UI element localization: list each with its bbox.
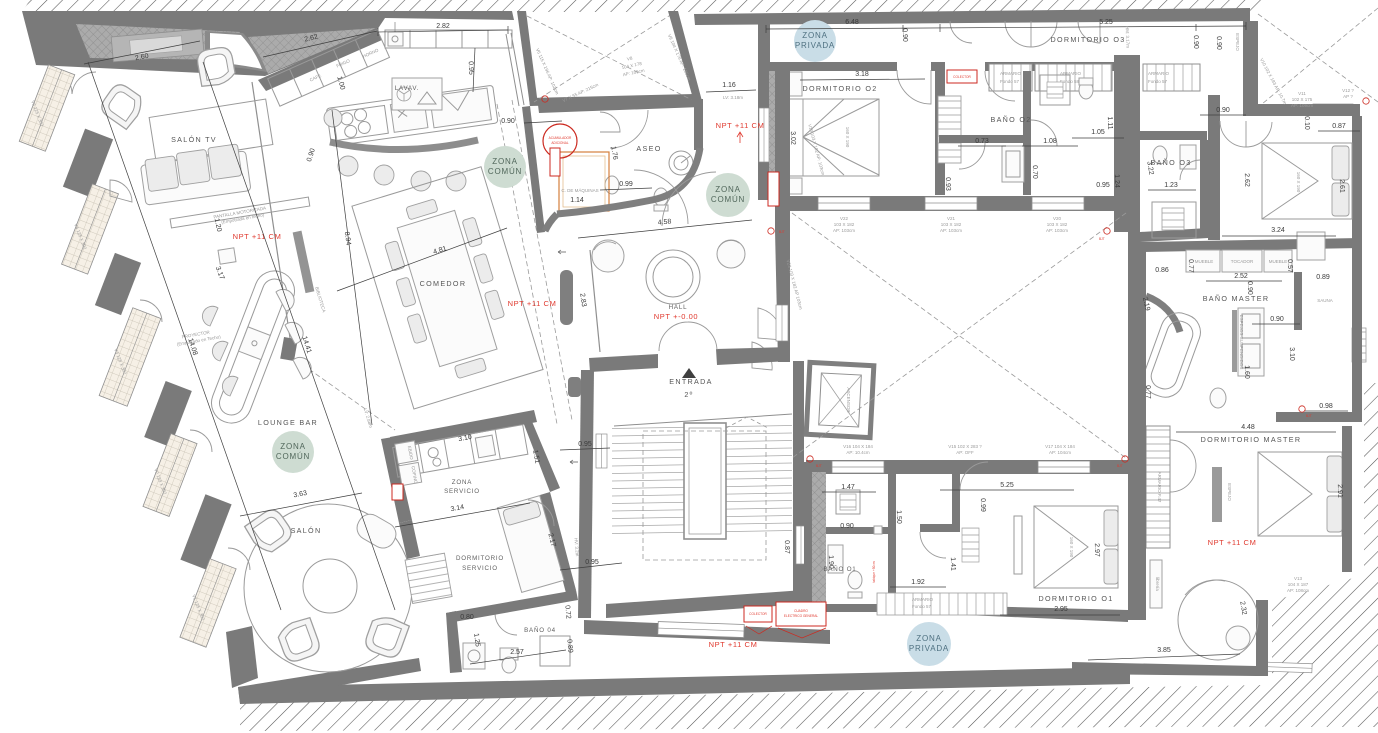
svg-text:NPT +11 CM: NPT +11 CM: [1208, 538, 1257, 547]
svg-text:MUEBLE: MUEBLE: [1195, 259, 1214, 264]
svg-text:SERVICIO: SERVICIO: [462, 565, 498, 572]
svg-text:0.77: 0.77: [1144, 385, 1151, 399]
svg-text:0.90: 0.90: [1215, 36, 1222, 50]
svg-text:3.18: 3.18: [855, 71, 869, 78]
svg-text:AP: 10.4cm: AP: 10.4cm: [846, 450, 870, 455]
svg-text:BAÑO O3: BAÑO O3: [1150, 158, 1191, 167]
svg-text:1.23: 1.23: [1164, 182, 1178, 189]
svg-text:HM: 3.17m: HM: 3.17m: [1125, 26, 1131, 48]
svg-text:ZONA: ZONA: [802, 31, 827, 40]
svg-text:ARMARIO: ARMARIO: [1000, 71, 1022, 76]
svg-text:1.14: 1.14: [570, 197, 584, 204]
svg-text:0.87: 0.87: [1332, 123, 1346, 130]
svg-text:ADICIONAL: ADICIONAL: [551, 141, 568, 145]
svg-text:COMEDOR: COMEDOR: [420, 279, 467, 288]
svg-text:tabique +50cm: tabique +50cm: [872, 561, 876, 582]
svg-text:1.08: 1.08: [1043, 138, 1057, 145]
svg-text:V20: V20: [1053, 216, 1062, 221]
svg-text:ACUMULADOR: ACUMULADOR: [549, 136, 572, 140]
svg-text:AP: 103cm: AP: 103cm: [833, 228, 855, 233]
svg-text:0.10: 0.10: [1303, 116, 1310, 130]
svg-text:SAUNA: SAUNA: [1317, 298, 1333, 303]
svg-text:PRIVADA: PRIVADA: [909, 644, 949, 653]
svg-text:1.24: 1.24: [1113, 174, 1120, 188]
svg-text:DORMITORIO: DORMITORIO: [456, 555, 504, 562]
svg-text:0.70: 0.70: [1031, 165, 1038, 179]
svg-text:2.57: 2.57: [510, 649, 524, 656]
svg-text:Fondo 57: Fondo 57: [912, 604, 932, 609]
svg-text:104 X 187: 104 X 187: [1288, 582, 1309, 587]
svg-text:5.25: 5.25: [1099, 19, 1113, 26]
svg-text:COLECTOR: COLECTOR: [953, 75, 971, 79]
svg-text:V16 104 X 184: V16 104 X 184: [843, 444, 873, 449]
svg-text:ZONA: ZONA: [452, 479, 472, 486]
svg-text:BAÑO 04: BAÑO 04: [524, 627, 556, 634]
svg-text:ASCENSOR: ASCENSOR: [846, 387, 851, 413]
svg-text:1.05: 1.05: [1091, 129, 1105, 136]
svg-text:3.02: 3.02: [789, 131, 796, 145]
svg-text:0.90: 0.90: [901, 28, 908, 42]
svg-text:DORMITORIO O2: DORMITORIO O2: [802, 84, 877, 93]
svg-text:0.90: 0.90: [1216, 107, 1230, 114]
svg-text:COMÚN: COMÚN: [711, 195, 745, 204]
svg-text:V17 104 X 184: V17 104 X 184: [1045, 444, 1075, 449]
svg-text:4.48: 4.48: [1241, 424, 1255, 431]
svg-text:NPT +11 CM: NPT +11 CM: [716, 121, 765, 130]
svg-text:102 X 175: 102 X 175: [1292, 97, 1313, 102]
svg-text:SALÓN: SALÓN: [291, 526, 322, 535]
svg-text:V12 ?: V12 ?: [1342, 88, 1354, 93]
svg-text:1.90: 1.90: [827, 555, 834, 569]
svg-text:AP: 108cm: AP: 108cm: [1287, 588, 1309, 593]
svg-text:ESPEJO: ESPEJO: [1235, 33, 1240, 51]
svg-text:BAÑO O2: BAÑO O2: [990, 115, 1031, 124]
svg-text:0.57: 0.57: [1286, 259, 1293, 273]
svg-text:0.93: 0.93: [944, 177, 951, 191]
svg-text:LV: 3.18m: LV: 3.18m: [723, 95, 743, 100]
svg-text:BJT: BJT: [1306, 414, 1312, 418]
svg-text:2.91: 2.91: [1336, 484, 1343, 498]
svg-text:AP ?: AP ?: [1343, 94, 1353, 99]
svg-text:2.52: 2.52: [1234, 273, 1248, 280]
svg-text:COMÚN: COMÚN: [276, 452, 310, 461]
svg-text:HALL: HALL: [669, 304, 688, 311]
svg-text:0.95: 0.95: [467, 61, 474, 75]
svg-text:0.98: 0.98: [1319, 403, 1333, 410]
svg-text:ENTRADA: ENTRADA: [669, 377, 712, 386]
svg-text:V22: V22: [840, 216, 849, 221]
svg-text:ZONA: ZONA: [492, 157, 517, 166]
svg-text:V21: V21: [947, 216, 956, 221]
svg-text:5.25: 5.25: [1000, 482, 1014, 489]
svg-text:SERVICIO: SERVICIO: [444, 488, 480, 495]
svg-text:AP: 103cm: AP: 103cm: [940, 228, 962, 233]
svg-text:AP: OFF: AP: OFF: [956, 450, 974, 455]
svg-text:ZONA: ZONA: [916, 634, 941, 643]
svg-text:1.11: 1.11: [1106, 116, 1113, 129]
svg-text:2.97: 2.97: [1093, 543, 1100, 557]
svg-text:CUADRO: CUADRO: [794, 609, 808, 613]
svg-text:BJT: BJT: [1117, 464, 1123, 468]
svg-text:ELECTRICO GENERAL: ELECTRICO GENERAL: [784, 614, 819, 618]
svg-text:AP: 103cm: AP: 103cm: [1046, 228, 1068, 233]
svg-text:0.72: 0.72: [563, 605, 571, 619]
svg-text:1.92: 1.92: [911, 579, 925, 586]
svg-text:3.24: 3.24: [1271, 227, 1285, 234]
svg-text:PRIVADA: PRIVADA: [795, 41, 835, 50]
svg-text:1.47: 1.47: [841, 484, 855, 491]
svg-text:3.85: 3.85: [1157, 647, 1171, 654]
svg-text:BJT: BJT: [816, 464, 822, 468]
svg-text:0.95: 0.95: [578, 441, 592, 448]
svg-text:2.61: 2.61: [1338, 179, 1345, 193]
svg-text:Fondo 57: Fondo 57: [1148, 79, 1168, 84]
svg-text:DORMITORIO O3: DORMITORIO O3: [1050, 35, 1125, 44]
svg-text:ARMARIO: ARMARIO: [912, 597, 934, 602]
svg-text:103 X 182: 103 X 182: [834, 222, 855, 227]
svg-text:0.86: 0.86: [1155, 267, 1169, 274]
svg-text:0.99: 0.99: [979, 498, 986, 512]
svg-text:103 X 182: 103 X 182: [941, 222, 962, 227]
svg-text:1.50: 1.50: [895, 510, 902, 524]
svg-text:0.89: 0.89: [1316, 274, 1330, 281]
svg-text:ARMARIO: ARMARIO: [1148, 71, 1170, 76]
svg-text:0.99: 0.99: [619, 181, 633, 188]
svg-text:DORMITORIO MASTER: DORMITORIO MASTER: [1201, 435, 1302, 444]
svg-text:COMÚN: COMÚN: [488, 167, 522, 176]
svg-text:6.48: 6.48: [845, 19, 859, 26]
svg-text:0.90: 0.90: [840, 523, 854, 530]
svg-text:0.73: 0.73: [975, 138, 989, 145]
svg-text:C. DE MÁQUINAS: C. DE MÁQUINAS: [561, 187, 598, 193]
svg-text:0.90: 0.90: [1192, 35, 1199, 49]
svg-text:MUEBLE: MUEBLE: [1269, 259, 1288, 264]
svg-text:ESPEJO: ESPEJO: [1227, 483, 1232, 501]
svg-text:BAÑO MASTER: BAÑO MASTER: [1203, 294, 1270, 303]
svg-text:0.90: 0.90: [1270, 316, 1284, 323]
svg-text:160 X 190: 160 X 190: [845, 127, 850, 148]
svg-text:BJT: BJT: [779, 230, 785, 234]
svg-text:LAVAV.: LAVAV.: [395, 85, 420, 92]
svg-text:BJT: BJT: [1099, 237, 1105, 241]
svg-text:NPT +-0.00: NPT +-0.00: [654, 312, 698, 321]
svg-text:160 X 190: 160 X 190: [1296, 172, 1301, 193]
svg-text:ZONA: ZONA: [280, 442, 305, 451]
svg-text:NPT +11 CM: NPT +11 CM: [709, 640, 758, 649]
svg-text:COLECTOR: COLECTOR: [749, 612, 767, 616]
svg-text:1.60: 1.60: [1243, 365, 1250, 379]
svg-text:2º: 2º: [684, 390, 693, 399]
svg-text:0.95: 0.95: [585, 559, 599, 566]
svg-text:0.80: 0.80: [460, 614, 474, 621]
svg-text:0.90: 0.90: [1246, 281, 1253, 295]
svg-text:V11: V11: [1298, 91, 1306, 96]
svg-text:0.87: 0.87: [783, 540, 790, 554]
svg-text:4.58: 4.58: [658, 218, 672, 226]
svg-text:DORMITORIO O1: DORMITORIO O1: [1038, 594, 1113, 603]
svg-text:0.89: 0.89: [565, 639, 573, 653]
svg-text:1.41: 1.41: [949, 557, 956, 571]
svg-text:0.77: 0.77: [1187, 259, 1194, 273]
svg-text:AP: 109cm: AP: 109cm: [1291, 103, 1313, 108]
svg-text:ESPEJOS SUSPENDIDOS: ESPEJOS SUSPENDIDOS: [1239, 315, 1244, 370]
svg-text:ASEO: ASEO: [636, 144, 661, 153]
svg-text:TOCADOR: TOCADOR: [1231, 259, 1254, 264]
svg-text:NPT +11 CM: NPT +11 CM: [508, 299, 557, 308]
svg-text:2.82: 2.82: [436, 23, 450, 30]
svg-text:librería: librería: [1155, 577, 1160, 591]
svg-text:1.16: 1.16: [722, 82, 736, 89]
svg-text:0.90: 0.90: [501, 118, 515, 125]
svg-text:103 X 182: 103 X 182: [1047, 222, 1068, 227]
svg-text:LOUNGE BAR: LOUNGE BAR: [258, 418, 318, 427]
svg-text:2.62: 2.62: [1243, 173, 1250, 187]
svg-text:ZONA: ZONA: [715, 185, 740, 194]
svg-text:0.95: 0.95: [1096, 182, 1110, 189]
svg-text:V13: V13: [1294, 576, 1303, 581]
svg-text:AP: 104cm: AP: 104cm: [1049, 450, 1071, 455]
svg-text:NPT +11 CM: NPT +11 CM: [233, 232, 282, 241]
svg-text:160 X 190: 160 X 190: [1069, 537, 1074, 558]
svg-text:Fondo 57: Fondo 57: [1000, 79, 1020, 84]
svg-text:V15 102 X 283 ?: V15 102 X 283 ?: [948, 444, 982, 449]
svg-text:2.95: 2.95: [1054, 606, 1068, 613]
svg-text:SALÓN TV: SALÓN TV: [171, 135, 217, 144]
svg-text:ARMARIO F.47: ARMARIO F.47: [1157, 472, 1162, 503]
svg-text:3.10: 3.10: [1288, 347, 1295, 361]
